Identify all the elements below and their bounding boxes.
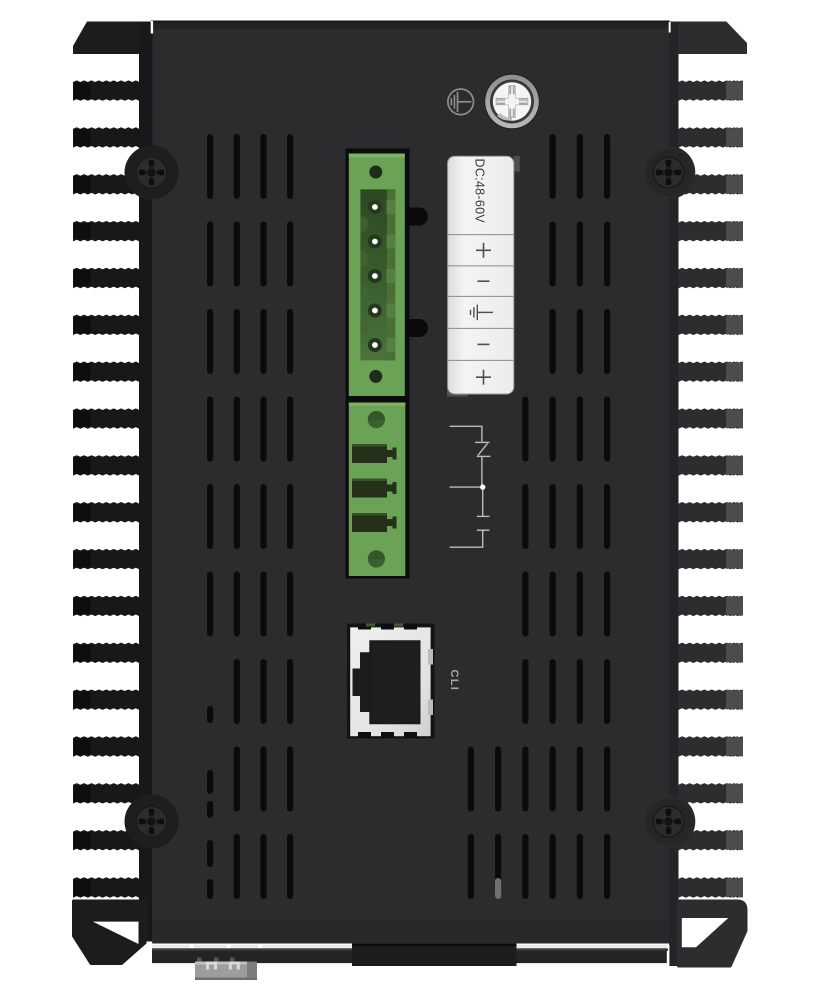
svg-text:CLI: CLI xyxy=(448,670,460,692)
svg-text:DC:48-60V: DC:48-60V xyxy=(473,159,487,224)
